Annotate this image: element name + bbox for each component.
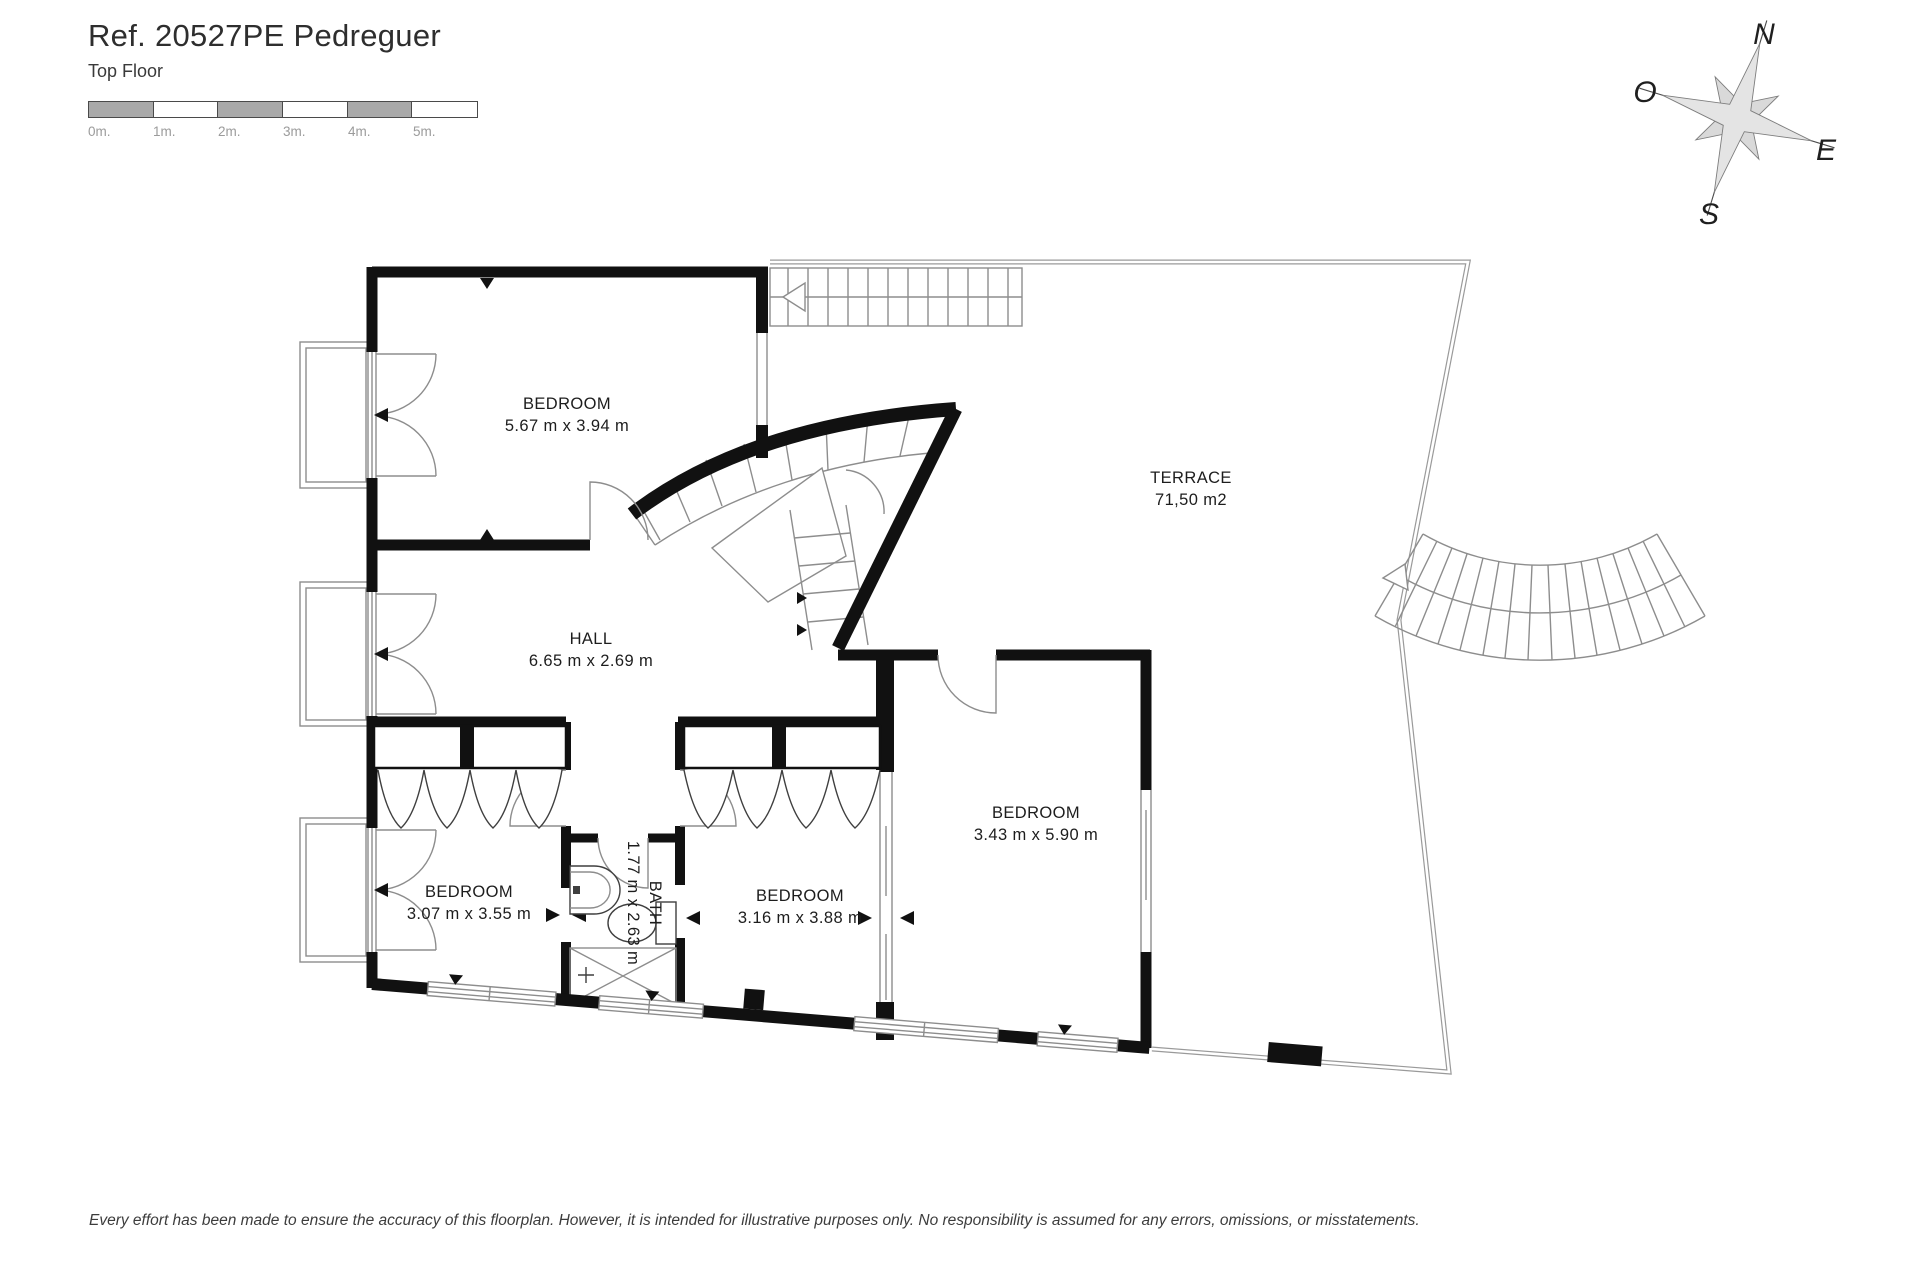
terrace-outline — [770, 262, 1468, 1072]
room-label-bedroom-sw: BEDROOM 3.07 m x 3.55 m — [407, 883, 531, 923]
compass-west-label: O — [1633, 76, 1656, 109]
room-dims: 3.07 m x 3.55 m — [407, 905, 531, 923]
room-name: BEDROOM — [992, 804, 1080, 822]
exterior-walls — [372, 267, 1151, 1048]
top-staircase — [757, 268, 1022, 425]
winding-staircase — [590, 409, 956, 650]
room-label-bath: BATH 1.77 m x 2.63 m — [624, 841, 664, 965]
compass-rose: N O E S — [1610, 0, 1865, 245]
room-name: TERRACE — [1150, 469, 1232, 487]
left-windows — [300, 342, 436, 962]
room-label-hall: HALL 6.65 m x 2.69 m — [529, 630, 653, 670]
stair-arrow — [797, 624, 807, 636]
compass-south-label: S — [1699, 198, 1719, 231]
floorplan-canvas: BEDROOM 5.67 m x 3.94 m TERRACE 71,50 m2… — [0, 0, 1920, 1280]
room-name: HALL — [570, 630, 613, 648]
room-dims: 71,50 m2 — [1155, 491, 1227, 509]
pocket-door-wall — [876, 655, 894, 1040]
room-dims: 3.43 m x 5.90 m — [974, 826, 1098, 844]
terrace-step — [1267, 1042, 1322, 1066]
door-marker — [900, 911, 914, 925]
sink-faucet — [573, 886, 580, 894]
room-name: BATH — [646, 881, 664, 925]
wall-marker — [480, 278, 494, 289]
compass-north-label: N — [1753, 18, 1775, 51]
floorplan-page: Ref. 20527PE Pedreguer Top Floor 0m. 1m.… — [0, 0, 1920, 1280]
door-marker — [686, 911, 700, 925]
room-dims: 3.16 m x 3.88 m — [738, 909, 862, 927]
wardrobes — [374, 726, 880, 828]
compass-star-cardinal — [1640, 21, 1835, 216]
compass-east-label: E — [1816, 134, 1837, 167]
bottom-wall — [371, 958, 1151, 1055]
room-dims: 5.67 m x 3.94 m — [505, 417, 629, 435]
room-dims: 1.77 m x 2.63 m — [624, 841, 642, 965]
wall-marker — [480, 529, 494, 540]
room-label-terrace: TERRACE 71,50 m2 — [1150, 469, 1232, 509]
room-name: BEDROOM — [425, 883, 513, 901]
door-marker — [546, 908, 560, 922]
room-dims: 6.65 m x 2.69 m — [529, 652, 653, 670]
stair-direction-arrow — [1383, 564, 1408, 590]
room-name: BEDROOM — [523, 395, 611, 413]
room-label-bedroom-se: BEDROOM 3.43 m x 5.90 m — [974, 804, 1098, 844]
disclaimer-text: Every effort has been made to ensure the… — [89, 1212, 1420, 1230]
room-label-bedroom-mid: BEDROOM 3.16 m x 3.88 m — [738, 887, 862, 927]
curved-staircase — [1375, 534, 1705, 660]
shower-valve — [578, 967, 594, 983]
room-name: BEDROOM — [756, 887, 844, 905]
door-arc — [938, 655, 996, 713]
room-label-bedroom-top: BEDROOM 5.67 m x 3.94 m — [505, 395, 629, 435]
